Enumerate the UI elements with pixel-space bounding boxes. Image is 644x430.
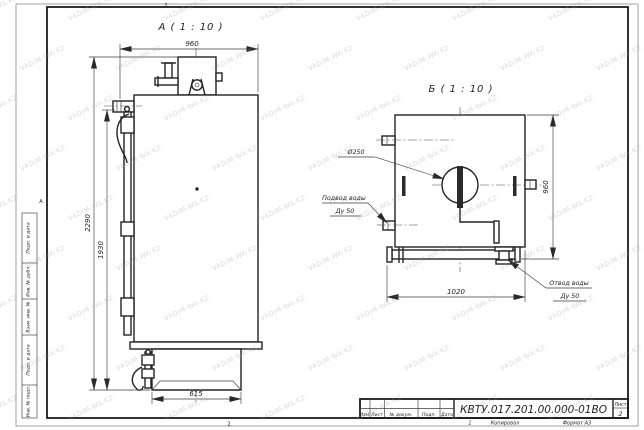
dim-front-height-body: 1930 (97, 110, 115, 390)
stamp-podp-data-1: Подп. и дата (26, 222, 32, 253)
label-inlet: Подвод воды (322, 195, 366, 202)
label-hatch-diameter: Ø250 (347, 148, 365, 156)
boiler-body (134, 95, 258, 342)
front-left-fitting (113, 101, 134, 112)
dim-text-960-front: 960 (185, 40, 199, 48)
base-pedestal (152, 349, 241, 390)
doc-number: КВТУ.017.201.00.000-01ВО (460, 404, 607, 416)
base-plate (130, 342, 262, 349)
bottom-manifold (387, 247, 520, 264)
dim-text-960-side: 960 (542, 180, 550, 194)
margin-stamp-column: Подп. и дата Инв. № дубл. Взам. инв. № П… (22, 213, 37, 418)
drawing-sheet: 2 2 А Подп. и дата Инв. № дубл. Взам. ин… (0, 0, 644, 430)
leader-outlet: Отвод воды Ду 50 (508, 260, 592, 301)
stamp-podp-data-2: Подп. и дата (26, 344, 32, 375)
inlet-fitting (383, 221, 395, 230)
footer-format: Формат А3 (563, 421, 591, 427)
side-view: Б ( 1 : 10 ) (322, 84, 592, 302)
front-view-title: А ( 1 : 10 ) (158, 22, 224, 33)
stamp-inv-dubl: Инв. № дубл. (26, 265, 32, 296)
side-slot-right (513, 176, 517, 196)
front-view: А ( 1 : 10 ) (84, 22, 262, 404)
hatch-bar (457, 166, 463, 208)
zone-marker-top: 2 (164, 3, 167, 9)
stamp-inv-podl: Инв. № подл. (26, 386, 32, 418)
stamp-vzam-inv: Взам. инв. № (26, 301, 32, 332)
side-fitting-right (525, 180, 536, 189)
side-slot-left (402, 176, 406, 196)
side-fitting-upper-left (382, 136, 395, 145)
chimney-stub (216, 73, 222, 81)
col-list: Лист (370, 412, 383, 418)
lifting-eye-icon (192, 80, 202, 90)
dim-text-2290: 2290 (84, 214, 92, 232)
leader-inlet: Подвод воды Ду 50 (322, 195, 387, 223)
col-data: Дата (440, 412, 453, 418)
dim-text-615: 615 (189, 390, 203, 398)
fold-mark: 1 (468, 421, 471, 427)
sheet-number: 2 (618, 410, 622, 418)
col-podp: Подп. (422, 412, 436, 418)
dim-text-1020: 1020 (447, 288, 465, 296)
col-docnum: № докум. (389, 412, 413, 418)
drawing-canvas: 2 2 А Подп. и дата Инв. № дубл. Взам. ин… (0, 0, 644, 430)
dim-front-base: 615 (152, 390, 241, 404)
sight-point (195, 187, 198, 190)
chimney-riser (165, 63, 172, 78)
title-block: Изм. Лист № докум. Подп. Дата КВТУ.017.2… (360, 399, 628, 427)
label-inlet-size: Ду 50 (335, 208, 355, 215)
label-outlet: Отвод воды (549, 280, 588, 287)
side-view-title: Б ( 1 : 10 ) (428, 84, 493, 95)
sheet-frame: 2 2 А (16, 3, 638, 428)
sheet-label: Лист (613, 402, 626, 408)
label-outlet-size: Ду 50 (560, 293, 580, 300)
footer-copied: Копировал (491, 421, 520, 427)
col-izm: Изм. (360, 412, 371, 418)
zone-marker-bottom: 2 (227, 422, 230, 428)
zone-marker-left: А (39, 199, 43, 205)
paper-border (16, 4, 638, 426)
dim-text-1930: 1930 (97, 241, 105, 259)
